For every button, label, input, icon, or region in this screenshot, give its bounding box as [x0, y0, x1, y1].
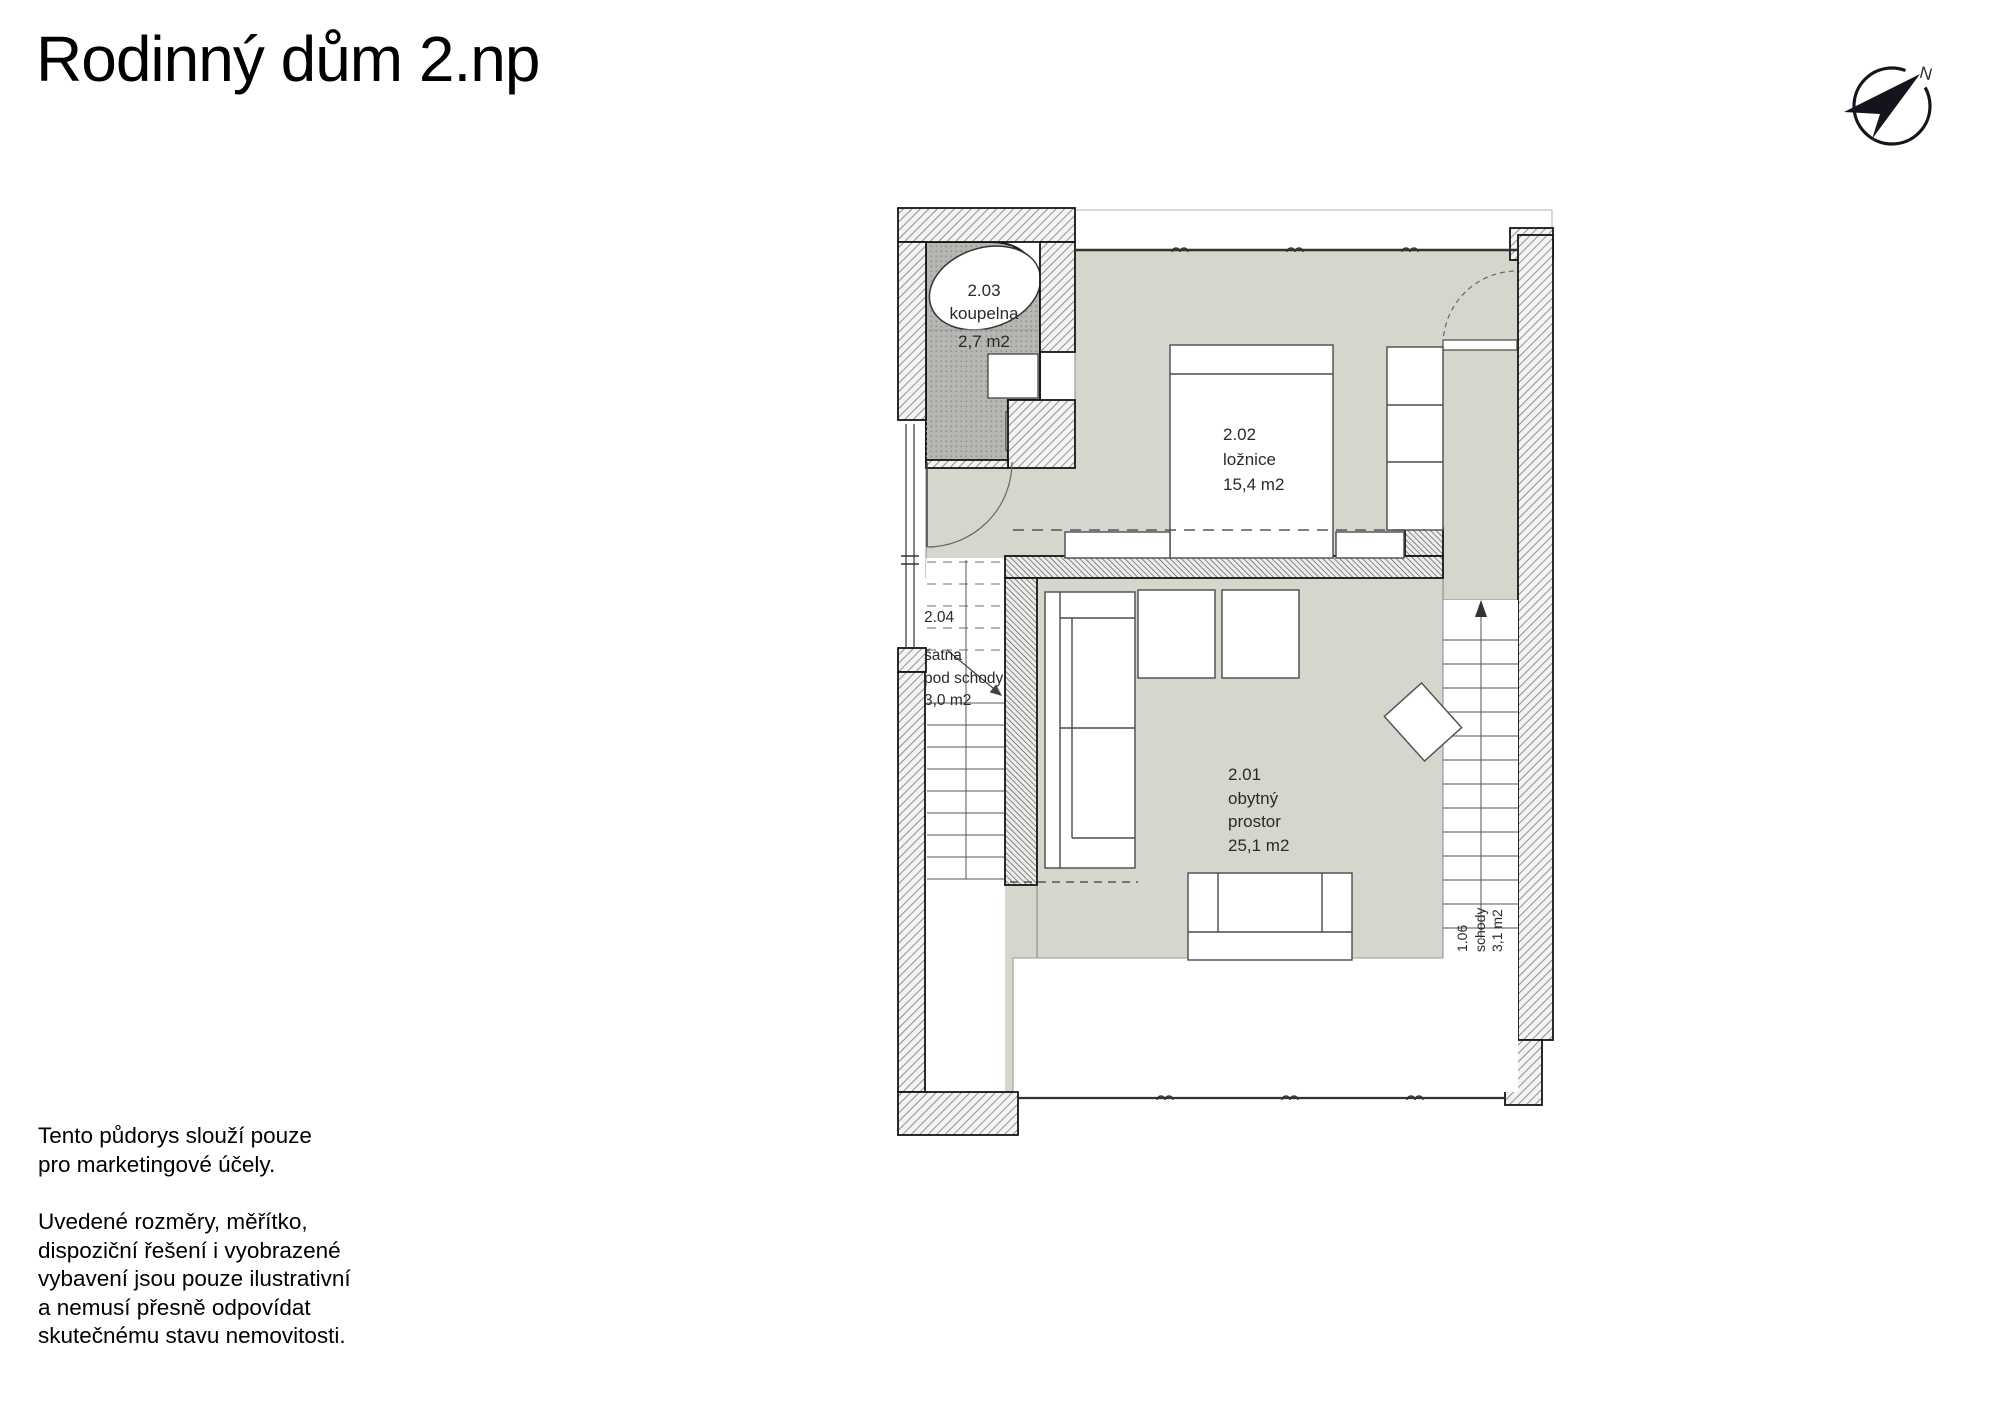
stairs-label-name: schody [1472, 908, 1488, 952]
floorplan-page: Rodinný dům 2.np N [0, 0, 2000, 1414]
disclaimer-paragraph-1: Tento půdorys slouží pouze pro marketing… [38, 1122, 351, 1179]
wall [1040, 242, 1075, 352]
bedroom-label-name: ložnice [1223, 450, 1276, 469]
disclaimer-line: Tento půdorys slouží pouze [38, 1122, 351, 1151]
void-area [1013, 958, 1505, 1098]
wall [898, 208, 1075, 242]
sofa-long [1045, 592, 1135, 868]
bedroom-door-leaf [1443, 340, 1517, 350]
wall [898, 672, 925, 1092]
closet-label-area: 3,0 m2 [924, 692, 971, 709]
wall [1518, 235, 1553, 1040]
bedroom-label-id: 2.02 [1223, 425, 1256, 444]
wall [898, 1092, 1018, 1135]
disclaimer-line: pro marketingové účely. [38, 1151, 351, 1180]
wardrobe [1387, 347, 1443, 530]
bench [1336, 532, 1404, 558]
bathroom-label-area: 2,7 m2 [958, 332, 1010, 351]
wall [926, 460, 1008, 468]
disclaimer-line: vybavení jsou pouze ilustrativní [38, 1265, 351, 1294]
living-label-area: 25,1 m2 [1228, 836, 1289, 855]
living-label-name2: prostor [1228, 812, 1281, 831]
wall [1405, 528, 1443, 556]
roof-overhang [1075, 210, 1552, 250]
sink [988, 354, 1038, 398]
disclaimer-paragraph-2: Uvedené rozměry, měřítko, dispoziční řeš… [38, 1208, 351, 1351]
armchair [1222, 590, 1299, 678]
disclaimer-line: dispoziční řešení i vyobrazené [38, 1237, 351, 1266]
disclaimer: Tento půdorys slouží pouze pro marketing… [38, 1122, 351, 1380]
sofa-bottom [1188, 873, 1352, 960]
disclaimer-line: Uvedené rozměry, měřítko, [38, 1208, 351, 1237]
closet-label-name2: pod schody [924, 670, 1004, 687]
wall [898, 242, 926, 420]
wall [1008, 400, 1075, 468]
wall [1005, 578, 1037, 885]
wall [898, 648, 926, 672]
bathroom-label-name: koupelna [949, 304, 1019, 323]
bench [1065, 532, 1170, 558]
stairs-label-area: 3,1 m2 [1489, 909, 1505, 952]
disclaimer-line: a nemusí přesně odpovídat [38, 1294, 351, 1323]
disclaimer-line: skutečnému stavu nemovitosti. [38, 1322, 351, 1351]
stairs-label-id: 1.06 [1454, 925, 1470, 952]
bathroom-label-id: 2.03 [967, 281, 1000, 300]
living-label-id: 2.01 [1228, 765, 1261, 784]
closet-label-id: 2.04 [924, 609, 955, 626]
wall [1005, 556, 1443, 578]
armchair [1138, 590, 1215, 678]
bedroom-label-area: 15,4 m2 [1223, 475, 1284, 494]
living-label-name1: obytný [1228, 789, 1279, 808]
closet-label-name1: šatna [924, 647, 962, 664]
